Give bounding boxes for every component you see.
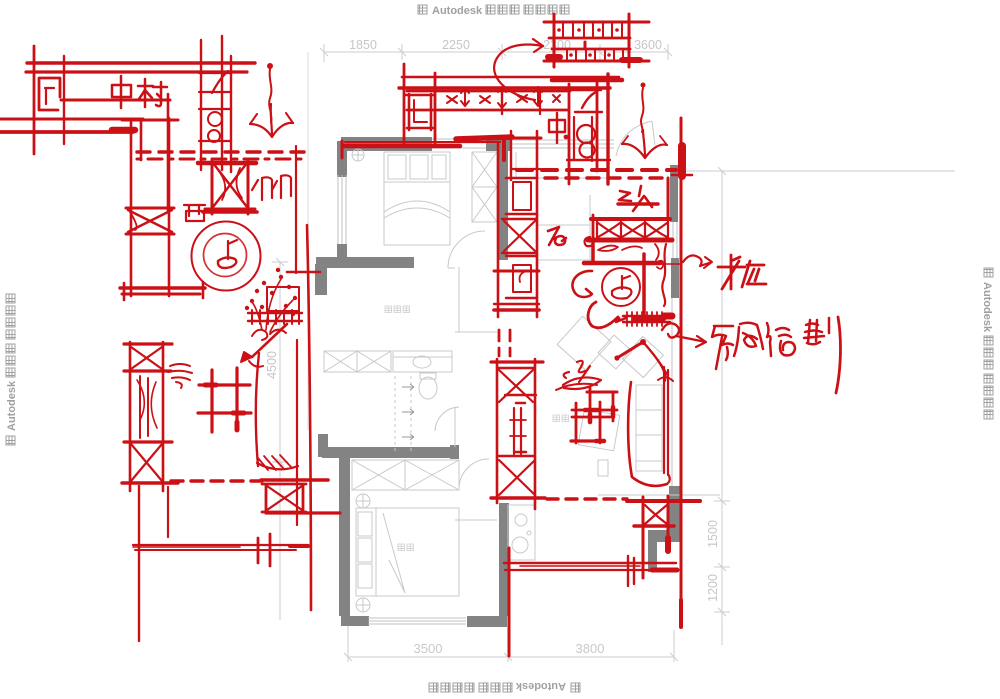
svg-text:4500: 4500 [265, 351, 279, 379]
svg-text:1850: 1850 [349, 38, 377, 52]
svg-text:3600: 3600 [634, 38, 662, 52]
svg-text:1200: 1200 [706, 574, 720, 602]
svg-text:2250: 2250 [442, 38, 470, 52]
svg-text:3800: 3800 [576, 641, 605, 656]
svg-text:Autodesk: Autodesk [432, 5, 483, 17]
svg-text:Autodesk: Autodesk [515, 680, 566, 692]
svg-text:3500: 3500 [414, 641, 443, 656]
svg-text:1500: 1500 [706, 520, 720, 548]
svg-text:Autodesk: Autodesk [981, 282, 993, 333]
svg-text:Autodesk: Autodesk [6, 380, 18, 431]
